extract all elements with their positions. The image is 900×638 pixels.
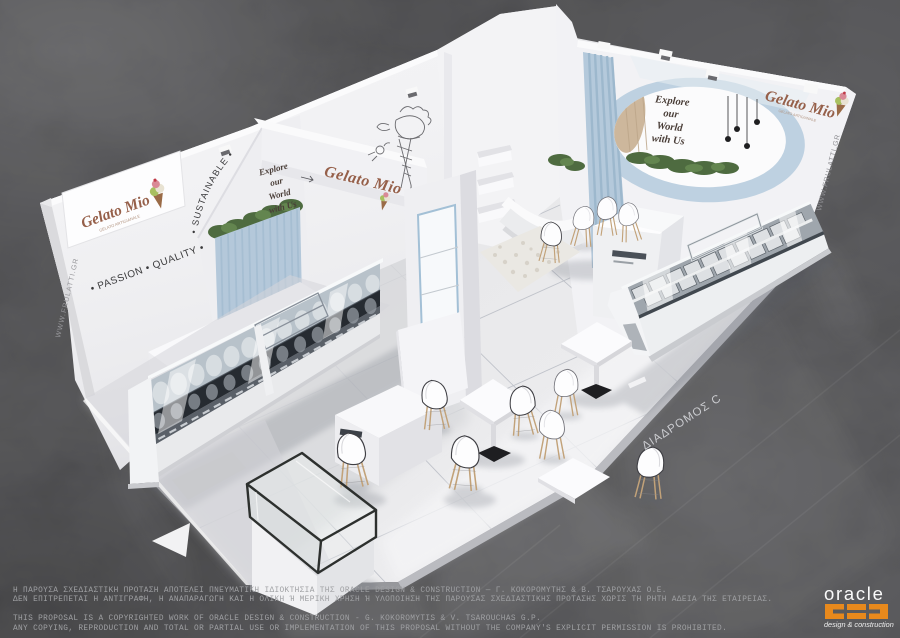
- svg-text:our: our: [663, 108, 680, 121]
